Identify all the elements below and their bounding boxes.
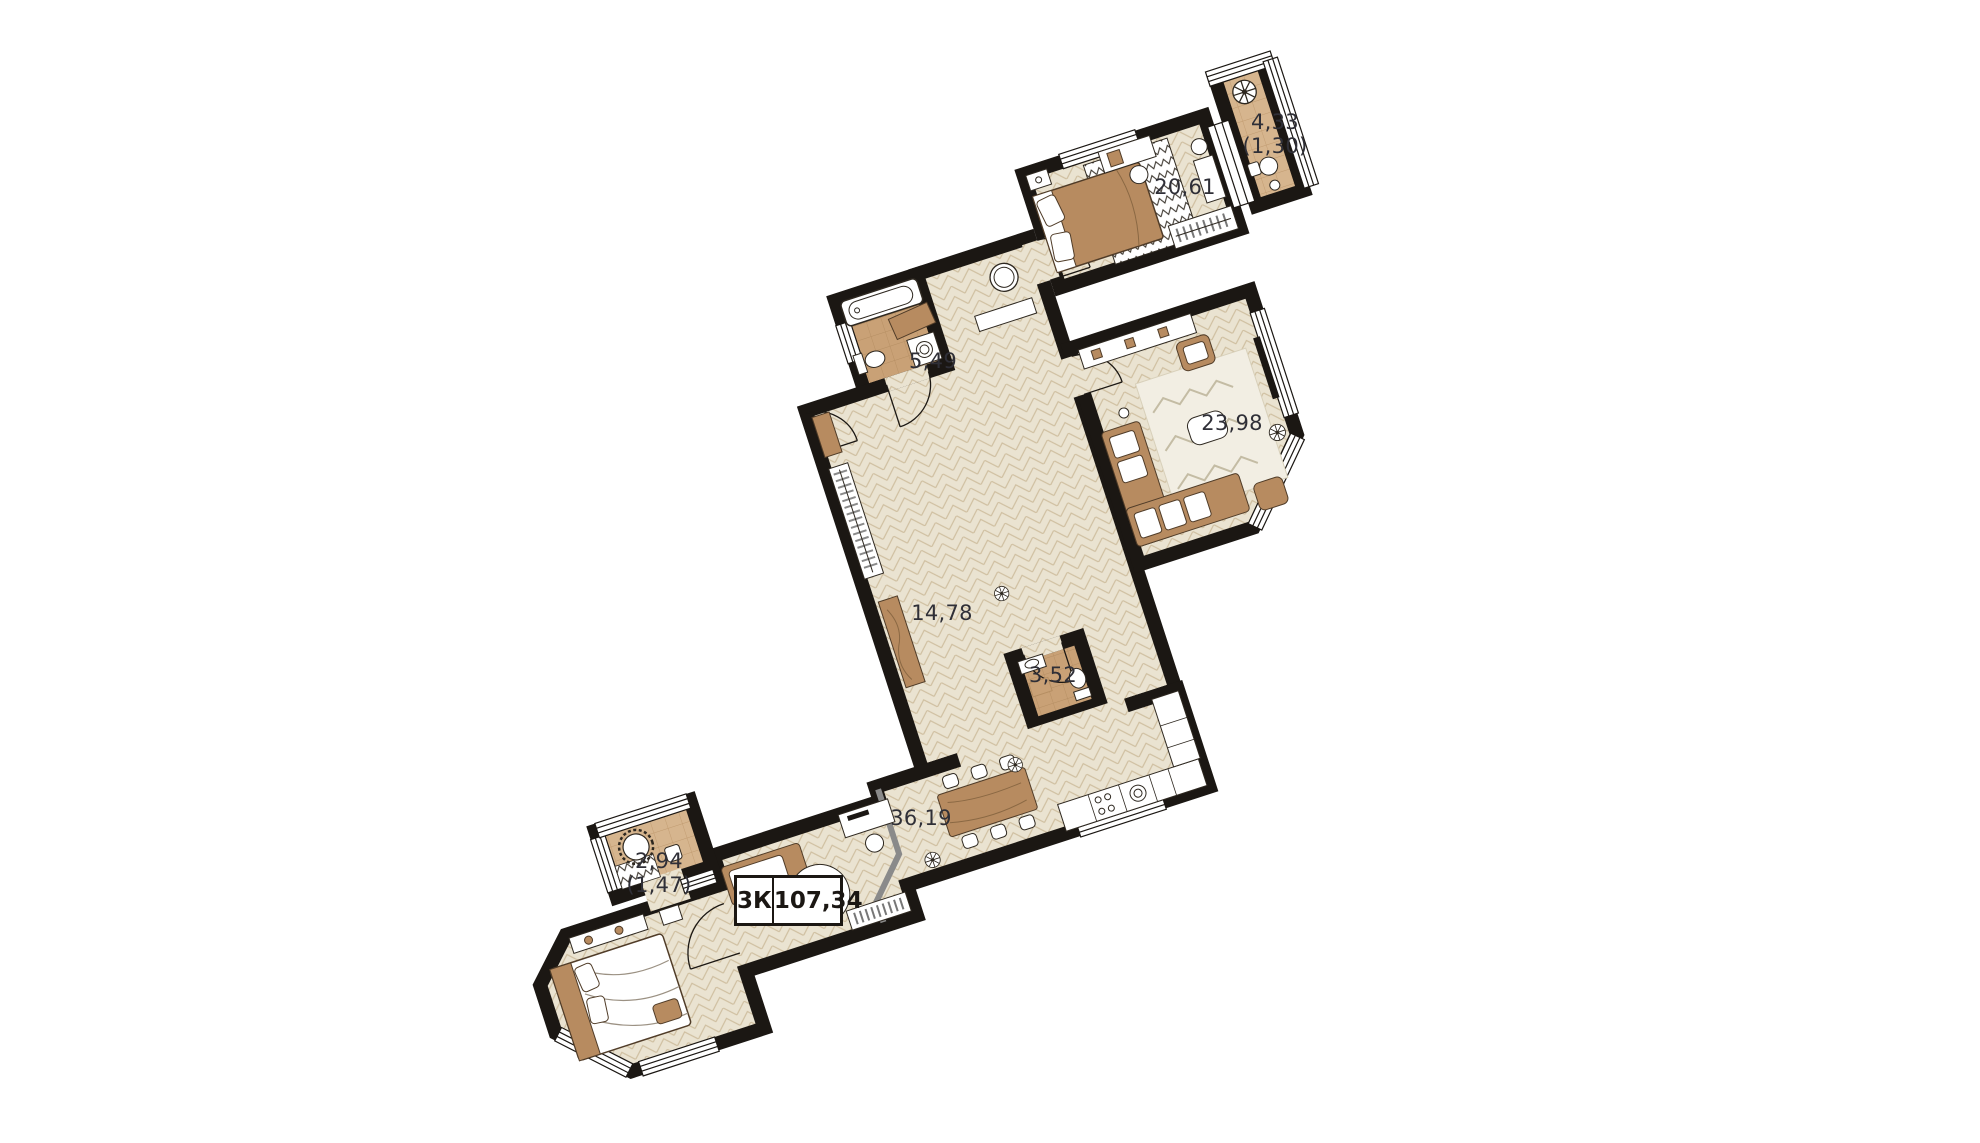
area-label-balcony-bottom: 2,94(1,47) <box>627 849 692 897</box>
area-label-kitchen-living: 36,19 <box>890 806 952 830</box>
area-label-bathroom: 5,49 <box>909 349 957 373</box>
balcony-top-area: 4,33 <box>1251 110 1299 134</box>
area-label-living-room: 23,98 <box>1201 411 1263 435</box>
room-floors <box>338 62 1499 1090</box>
apartment-total-area: 107,34 <box>774 878 863 923</box>
apartment-summary-box: 3К 107,34 <box>734 875 843 926</box>
area-label-hallway: 14,78 <box>911 601 973 625</box>
area-label-bedroom-top: 20,61 <box>1154 175 1216 199</box>
apartment-type-label: 3К <box>737 878 774 923</box>
rotated-plan-group <box>332 49 1516 1098</box>
balcony-bottom-area: 2,94 <box>635 849 683 873</box>
area-label-balcony-top: 4,33(1,30) <box>1243 110 1308 158</box>
balcony-bottom-reduced-area: (1,47) <box>627 873 692 897</box>
area-label-wc: 3,52 <box>1029 663 1077 687</box>
floor-plan-page: 20,61 4,33(1,30) 5,49 23,98 14,78 3,52 3… <box>0 0 1980 1143</box>
floor-plan-drawing <box>0 0 1980 1143</box>
balcony-top-reduced-area: (1,30) <box>1243 134 1308 158</box>
